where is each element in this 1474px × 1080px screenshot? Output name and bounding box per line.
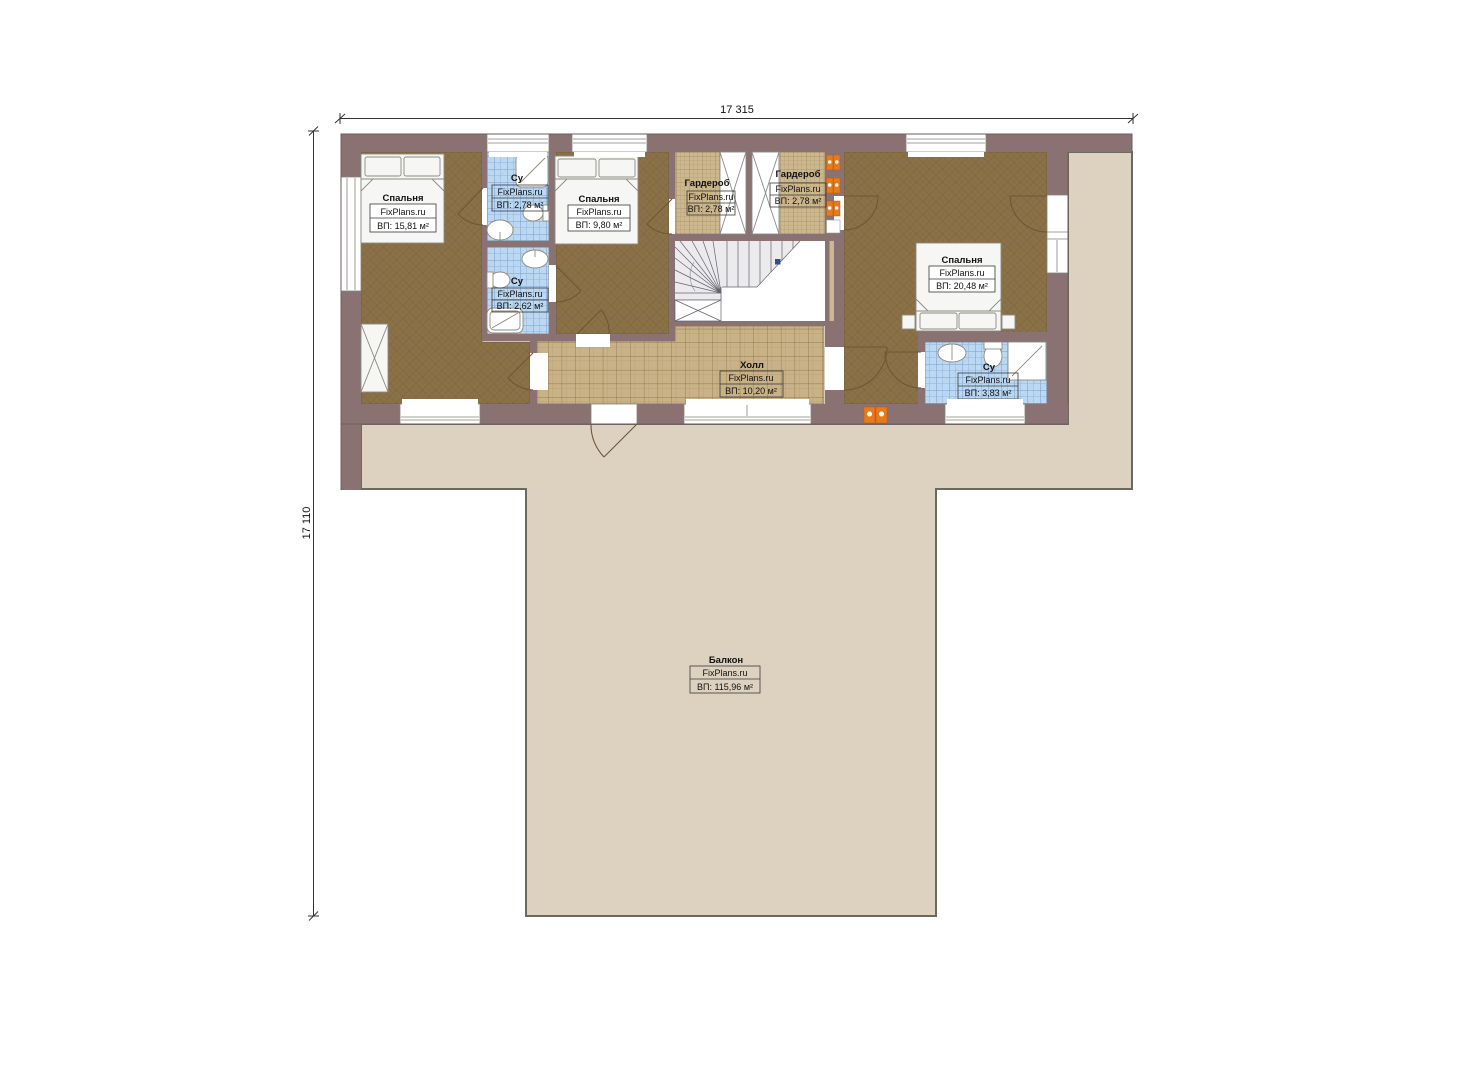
svg-text:Балкон: Балкон <box>709 655 744 666</box>
svg-text:FixPlans.ru: FixPlans.ru <box>728 373 773 383</box>
svg-text:ВП: 2,78 м²: ВП: 2,78 м² <box>497 200 544 210</box>
svg-text:Холл: Холл <box>740 360 764 371</box>
svg-text:FixPlans.ru: FixPlans.ru <box>702 668 747 678</box>
svg-text:FixPlans.ru: FixPlans.ru <box>497 289 542 299</box>
svg-text:FixPlans.ru: FixPlans.ru <box>380 207 425 217</box>
svg-text:FixPlans.ru: FixPlans.ru <box>688 192 733 202</box>
svg-text:Спальня: Спальня <box>382 193 423 204</box>
svg-text:Су: Су <box>511 276 524 287</box>
svg-text:ВП: 10,20 м²: ВП: 10,20 м² <box>725 386 777 396</box>
svg-text:17 315: 17 315 <box>720 104 754 116</box>
svg-text:ВП: 15,81 м²: ВП: 15,81 м² <box>377 221 429 231</box>
svg-text:ВП: 9,80 м²: ВП: 9,80 м² <box>576 220 623 230</box>
svg-text:Су: Су <box>983 362 996 373</box>
svg-text:FixPlans.ru: FixPlans.ru <box>965 375 1010 385</box>
svg-text:ВП: 2,62 м²: ВП: 2,62 м² <box>497 301 544 311</box>
svg-text:FixPlans.ru: FixPlans.ru <box>576 207 621 217</box>
svg-text:FixPlans.ru: FixPlans.ru <box>775 184 820 194</box>
svg-text:Гардероб: Гардероб <box>685 178 730 189</box>
svg-text:17 110: 17 110 <box>301 507 313 540</box>
svg-text:ВП: 115,96 м²: ВП: 115,96 м² <box>697 682 753 692</box>
svg-text:Су: Су <box>511 173 524 184</box>
svg-text:ВП: 20,48 м²: ВП: 20,48 м² <box>936 281 988 291</box>
svg-text:FixPlans.ru: FixPlans.ru <box>939 268 984 278</box>
svg-text:Спальня: Спальня <box>578 194 619 205</box>
svg-text:ВП: 3,83 м²: ВП: 3,83 м² <box>965 388 1012 398</box>
svg-text:FixPlans.ru: FixPlans.ru <box>497 187 542 197</box>
svg-text:ВП: 2,78 м²: ВП: 2,78 м² <box>775 196 822 206</box>
svg-text:Спальня: Спальня <box>941 255 982 266</box>
svg-text:Гардероб: Гардероб <box>776 169 821 180</box>
svg-text:ВП: 2,78 м²: ВП: 2,78 м² <box>688 204 735 214</box>
